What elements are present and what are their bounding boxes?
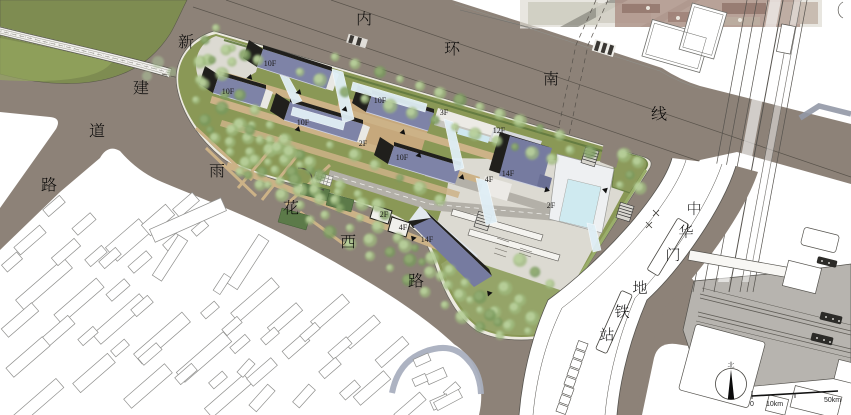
svg-text:4F: 4F: [399, 223, 408, 232]
svg-text:12F: 12F: [493, 126, 506, 135]
svg-text:10F: 10F: [264, 59, 277, 68]
svg-text:4F: 4F: [485, 175, 494, 184]
svg-text:3F: 3F: [440, 108, 449, 117]
svg-text:2F: 2F: [547, 201, 556, 210]
svg-text:10km: 10km: [766, 401, 783, 408]
svg-text:0: 0: [750, 401, 754, 408]
svg-text:10F: 10F: [297, 118, 310, 127]
svg-text:14F: 14F: [421, 235, 434, 244]
svg-text:50km: 50km: [824, 397, 841, 404]
svg-text:14F: 14F: [502, 169, 515, 178]
svg-text:2F: 2F: [359, 139, 368, 148]
svg-text:10F: 10F: [374, 96, 387, 105]
svg-text:2F: 2F: [380, 210, 389, 219]
svg-text:10F: 10F: [222, 87, 235, 96]
svg-text:10F: 10F: [396, 153, 409, 162]
